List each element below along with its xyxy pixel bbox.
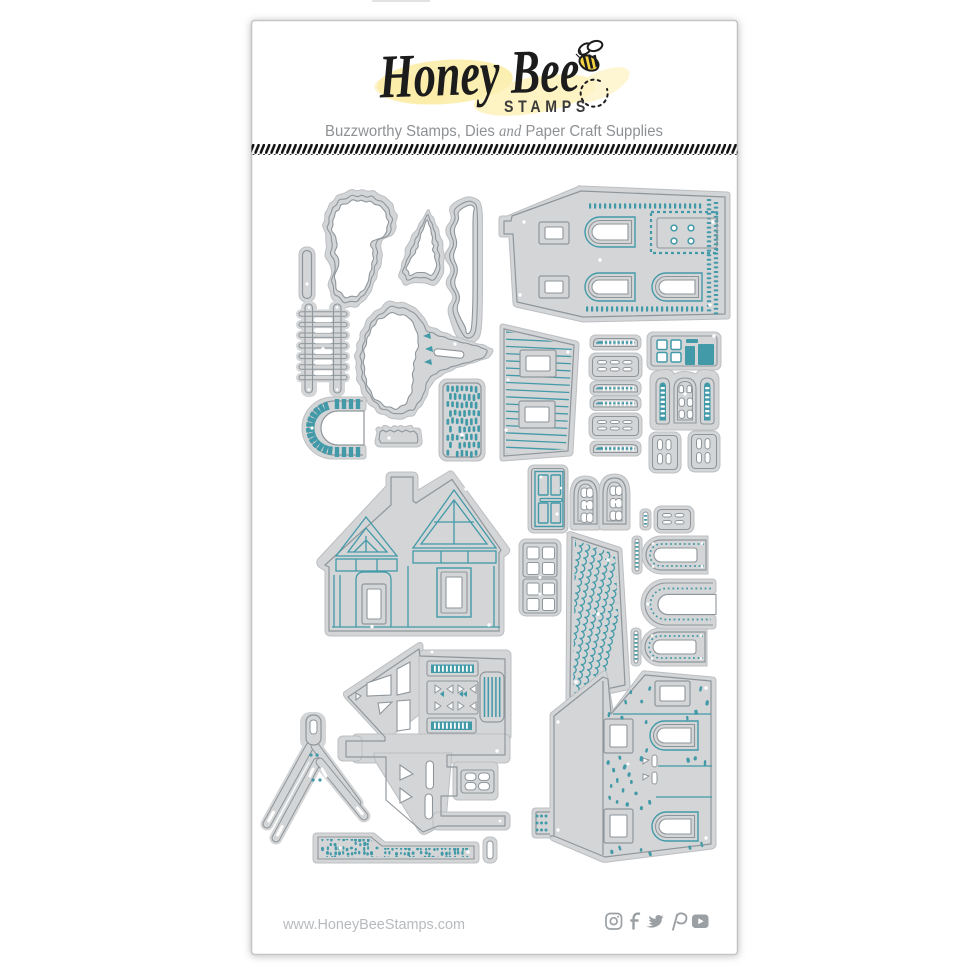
svg-text:www.HoneyBeeStamps.com: www.HoneyBeeStamps.com [282, 916, 465, 933]
svg-text:STAMPS: STAMPS [504, 98, 590, 116]
svg-text:Buzzworthy Stamps, Dies and Pa: Buzzworthy Stamps, Dies and Paper Craft … [325, 123, 663, 140]
